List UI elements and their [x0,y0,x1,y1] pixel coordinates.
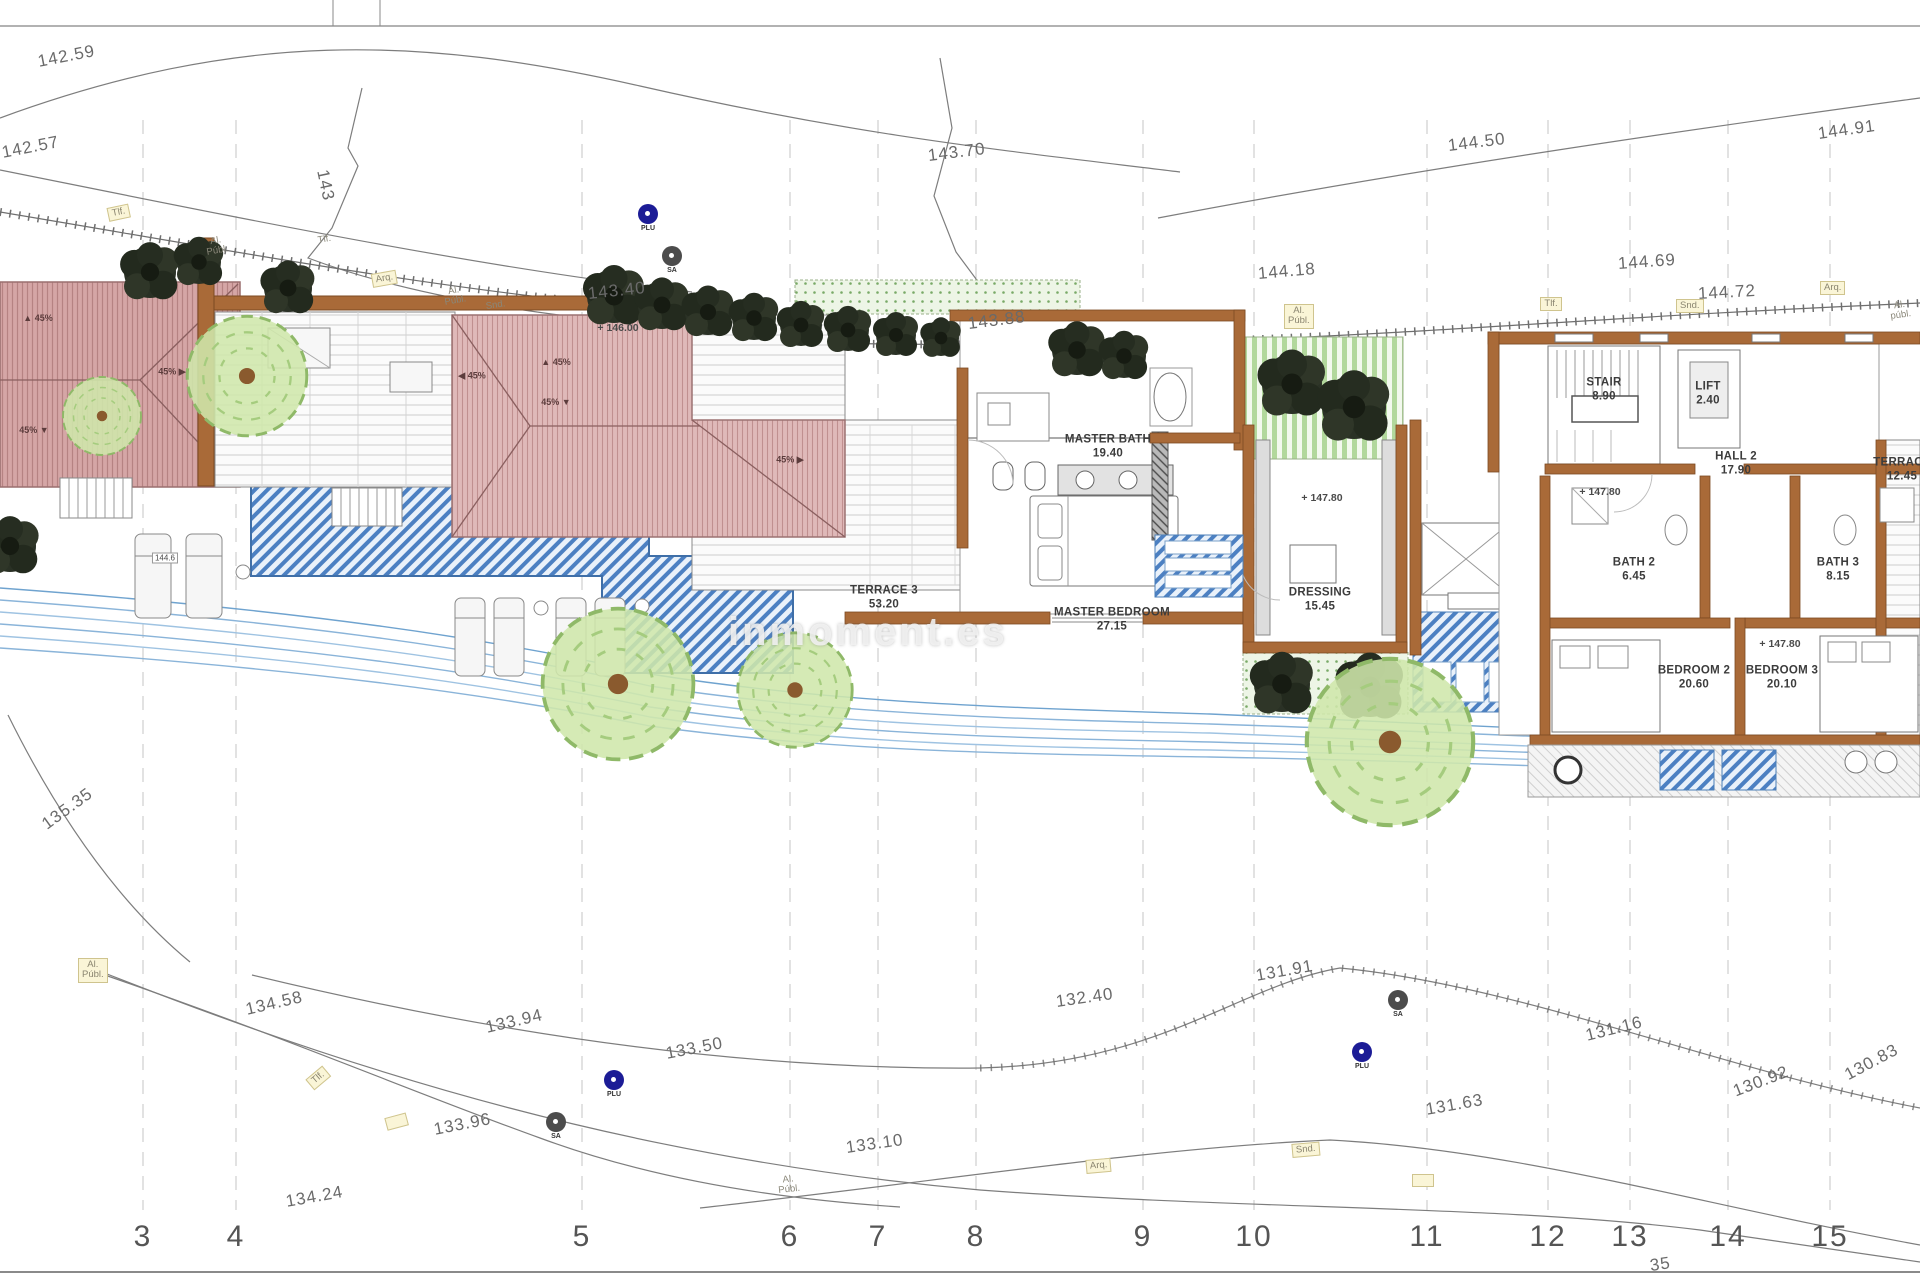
site-plan-page: 142.59142.57143143.70144.50144.91143.401… [0,0,1920,1280]
grid-axis-number: 10 [1235,1220,1272,1254]
room-label: BEDROOM 220.60 [1658,664,1730,693]
dark-tree-icon [120,242,179,299]
grid-axis-number: 6 [781,1220,800,1254]
utility-marker: SA [546,1112,566,1140]
marker-label: SA [662,267,682,274]
room-name: MASTER BEDROOM [1054,606,1170,620]
utility-label: Al. Públ. [204,234,229,258]
room-name: BATH 2 [1613,556,1655,570]
roof-slope-label: 45% ▶ [776,455,803,466]
plu-marker-icon [604,1070,624,1090]
sa-marker-icon [662,246,682,266]
utility-marker: PLU [604,1070,624,1098]
marker-label: PLU [638,225,658,232]
grid-axis-number: 3 [134,1220,153,1254]
marker-label: PLU [604,1091,624,1098]
contour-elevation-label: 144.72 [1697,281,1756,304]
grid-axis-number: 4 [227,1220,246,1254]
room-label: TERRACE12.45 [1873,456,1920,485]
light-tree-icon [187,316,307,436]
room-name: BEDROOM 2 [1658,664,1730,678]
room-label: HALL 217.90 [1715,450,1757,479]
utility-label: Tlf. [1540,297,1562,311]
level-label: + 146.00 [597,322,638,334]
grid-axis-number: 7 [869,1220,888,1254]
marker-label: SA [546,1133,566,1140]
room-label: BATH 38.15 [1817,556,1859,585]
room-area: 27.15 [1054,620,1170,634]
room-area: 20.60 [1658,678,1730,692]
grid-axis-number: 11 [1409,1220,1444,1254]
utility-label: Arq. [1820,281,1845,295]
grid-axis-number: 14 [1709,1220,1746,1254]
roof-slope-label: 45% ▼ [541,397,570,407]
utility-label: Al. Públ. [442,284,467,308]
sa-marker-icon [1388,990,1408,1010]
level-label: 144.6 [152,553,178,564]
grid-axis-number: 13 [1611,1220,1648,1254]
marker-label: SA [1388,1011,1408,1018]
roof-slope-label: ▲ 45% [23,313,52,323]
room-area: 2.40 [1695,394,1720,408]
grid-axis-number: 9 [1134,1220,1153,1254]
contour-elevation-label: 35 [1649,1253,1673,1276]
room-label: MASTER BATH19.40 [1065,433,1151,462]
room-label: DRESSING15.45 [1289,586,1351,615]
room-name: STAIR [1586,376,1621,390]
room-area: 8.15 [1817,570,1859,584]
plu-marker-icon [638,204,658,224]
room-area: 12.45 [1873,470,1920,484]
utility-label: Al. públ. [1889,299,1912,323]
utility-label: Al. Públ. [1284,304,1314,329]
roof-slope-label: ▲ 45% [541,357,570,367]
contour-elevation-label: 144.69 [1617,250,1676,274]
utility-marker: SA [1388,990,1408,1018]
utility-label: Al. Públ. [777,1174,801,1197]
roof-slope-label: ◀ 45% [458,371,485,382]
room-label: MASTER BEDROOM27.15 [1054,606,1170,635]
level-label: + 147.80 [1579,486,1620,498]
room-name: BATH 3 [1817,556,1859,570]
utility-label: Snd. [1291,1142,1320,1159]
sun-loungers-left [135,534,250,618]
room-label: LIFT2.40 [1695,380,1720,409]
room-name: LIFT [1695,380,1720,394]
plu-marker-icon [1352,1042,1372,1062]
room-label: STAIR8.90 [1586,376,1621,405]
utility-marker: SA [662,246,682,274]
utility-marker: PLU [638,204,658,232]
room-name: TERRACE [1873,456,1920,470]
roof-slope-label: 45% ▶ [158,367,185,378]
grid-axis-number: 8 [967,1220,986,1254]
room-area: 20.10 [1746,678,1818,692]
level-label: + 147.80 [1301,492,1342,504]
room-area: 15.45 [1289,600,1351,614]
room-area: 17.90 [1715,464,1757,478]
sa-marker-icon [546,1112,566,1132]
room-name: TERRACE 3 [850,584,918,598]
room-label: BATH 26.45 [1613,556,1655,585]
utility-marker: PLU [1352,1042,1372,1070]
grid-axis-number: 12 [1529,1220,1566,1254]
roof-slope-label: 45% ▼ [19,425,48,435]
marker-label: PLU [1352,1063,1372,1070]
room-label: BEDROOM 320.10 [1746,664,1818,693]
room-area: 8.90 [1586,390,1621,404]
utility-label: Arq. [1085,1158,1112,1175]
room-label: TERRACE 353.20 [850,584,918,613]
utility-label: Snd. [1676,299,1704,313]
room-name: DRESSING [1289,586,1351,600]
grid-axis-number: 5 [573,1220,592,1254]
utility-label: Al. Públ. [78,958,108,983]
room-name: MASTER BATH [1065,433,1151,447]
grid-axis-number: 15 [1811,1220,1848,1254]
room-area: 19.40 [1065,447,1151,461]
room-name: BEDROOM 3 [1746,664,1818,678]
room-area: 6.45 [1613,570,1655,584]
utility-label [1412,1174,1434,1187]
level-label: + 147.80 [1759,638,1800,650]
room-name: HALL 2 [1715,450,1757,464]
watermark: inmoment.es [728,610,1008,655]
